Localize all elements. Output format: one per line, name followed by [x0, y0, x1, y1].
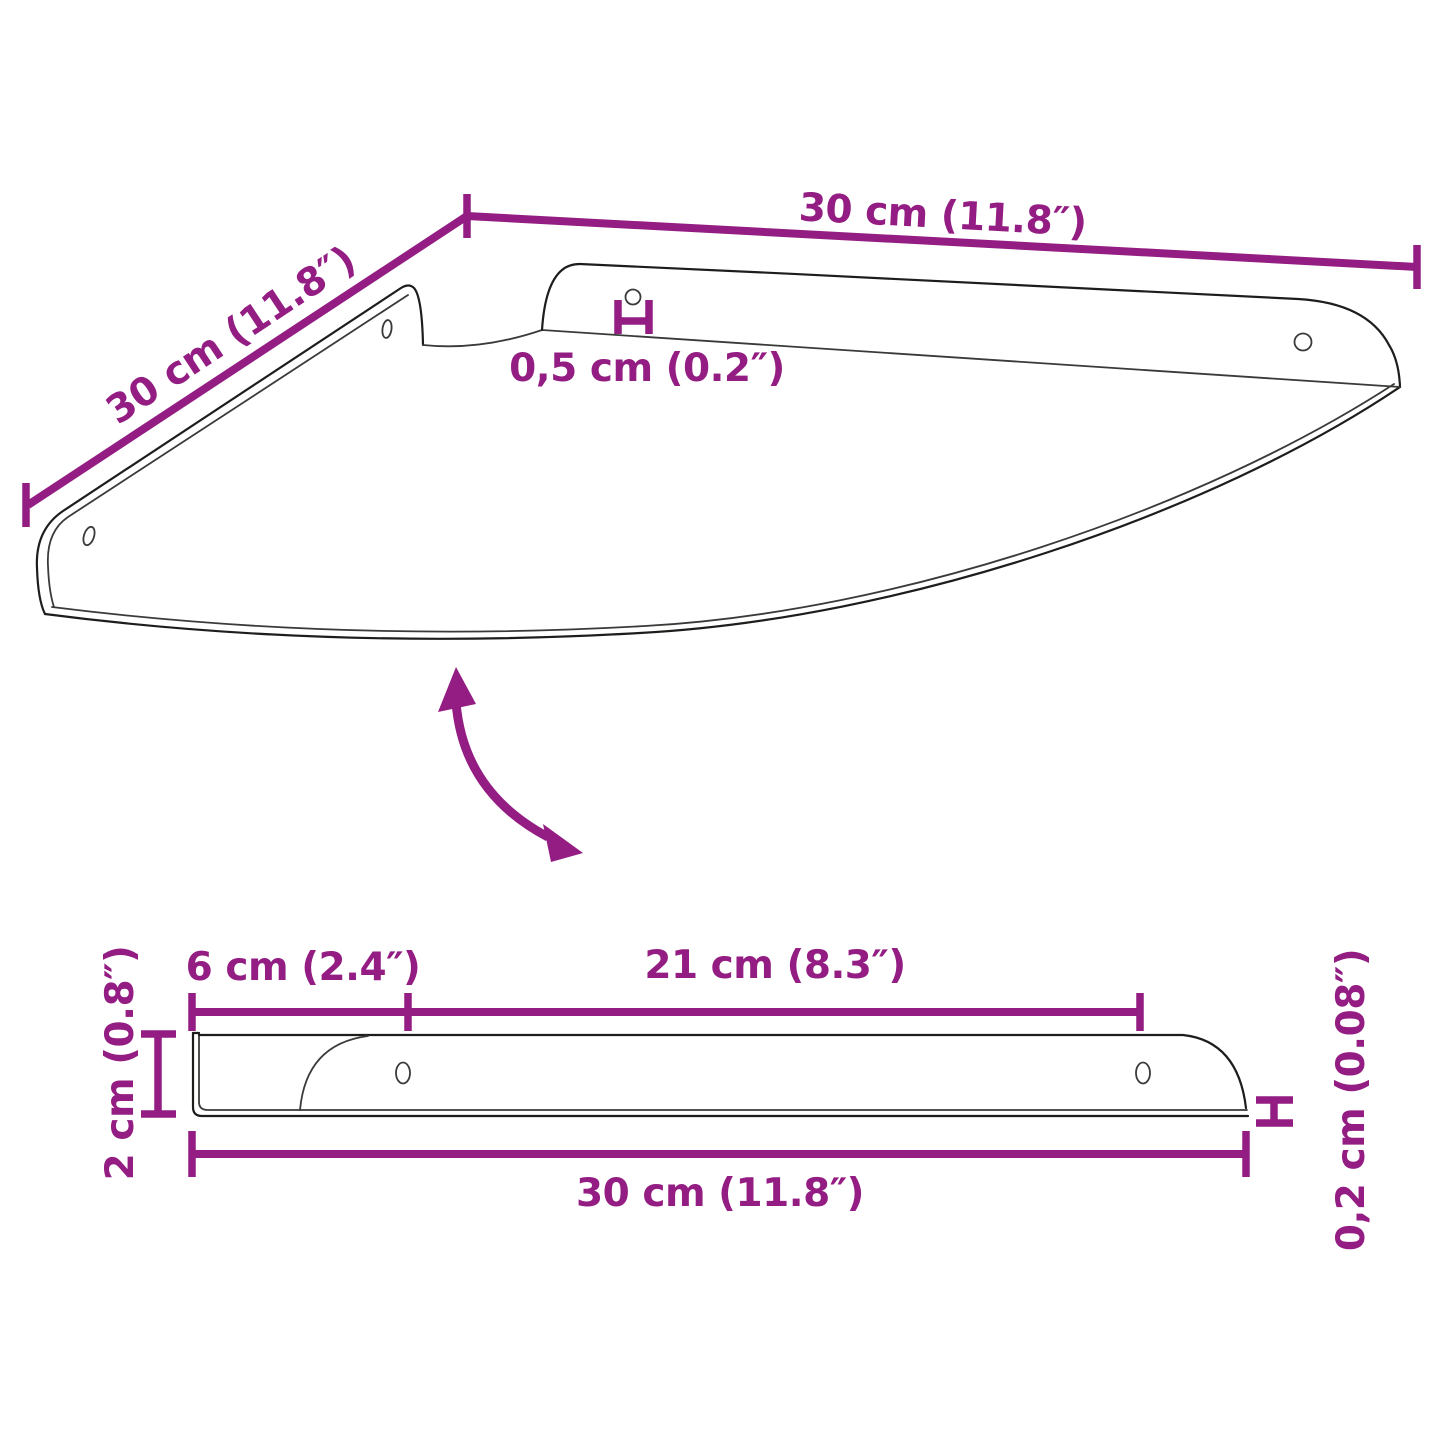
- dimension-label-hole-diameter: 0,5 cm (0.2″): [509, 346, 785, 391]
- dimension-hole-diameter: 0,5 cm (0.2″): [509, 300, 785, 391]
- dimension-bracket-height: 2 cm (0.8″): [98, 946, 176, 1181]
- mounting-hole: [1136, 1063, 1150, 1084]
- dimension-label-total-width: 30 cm (11.8″): [576, 1171, 864, 1216]
- dimension-shelf-thickness: 0,2 cm (0.08″): [1256, 949, 1374, 1251]
- shelf-corner-valley-edge: [423, 330, 542, 346]
- shelf-side-top-edge: [199, 1035, 1246, 1108]
- dimension-depth-and-span: 6 cm (2.4″) 21 cm (8.3″): [186, 943, 1140, 1031]
- dimension-diagram: 30 cm (11.8″) 30 cm (11.8″) 0,5 cm (0.2″…: [0, 0, 1445, 1445]
- rotation-arrow-curve: [456, 702, 548, 837]
- mounting-hole: [396, 1063, 410, 1084]
- dimension-line: [28, 216, 467, 505]
- mounting-hole: [1295, 334, 1312, 351]
- rotation-arrow-head-up: [438, 667, 476, 712]
- dimension-top-width-left: 30 cm (11.8″): [26, 216, 467, 527]
- bracket-inner-profile: [199, 1033, 1247, 1110]
- rotation-arrow-icon: [438, 667, 583, 862]
- diagram-canvas: 30 cm (11.8″) 30 cm (11.8″) 0,5 cm (0.2″…: [0, 0, 1445, 1445]
- dimension-label-shelf-span: 21 cm (8.3″): [644, 943, 905, 988]
- dimension-top-width-right: 30 cm (11.8″): [467, 185, 1417, 289]
- mounting-hole: [626, 290, 641, 305]
- dimension-label-bracket-depth: 6 cm (2.4″): [186, 945, 421, 990]
- dimension-label-top-width-left: 30 cm (11.8″): [99, 238, 364, 434]
- shelf-side-left-curve: [300, 1036, 368, 1110]
- dimension-total-width: 30 cm (11.8″): [192, 1131, 1246, 1216]
- mounting-hole: [381, 319, 392, 338]
- rotation-arrow-head-down: [543, 824, 583, 862]
- bracket-outer-profile: [193, 1033, 1248, 1116]
- mounting-hole: [81, 525, 96, 546]
- shelf-right-wall-left-corner: [542, 264, 580, 330]
- top-view-group: 30 cm (11.8″) 30 cm (11.8″) 0,5 cm (0.2″…: [26, 185, 1417, 638]
- side-view-group: 6 cm (2.4″) 21 cm (8.3″) 2 cm (0.8″) 30 …: [98, 943, 1374, 1251]
- dimension-label-bracket-height: 2 cm (0.8″): [98, 946, 143, 1181]
- dimension-label-shelf-thickness: 0,2 cm (0.08″): [1329, 949, 1374, 1251]
- shelf-front-edge-outer: [45, 387, 1400, 639]
- shelf-front-edge-inner: [52, 384, 1394, 632]
